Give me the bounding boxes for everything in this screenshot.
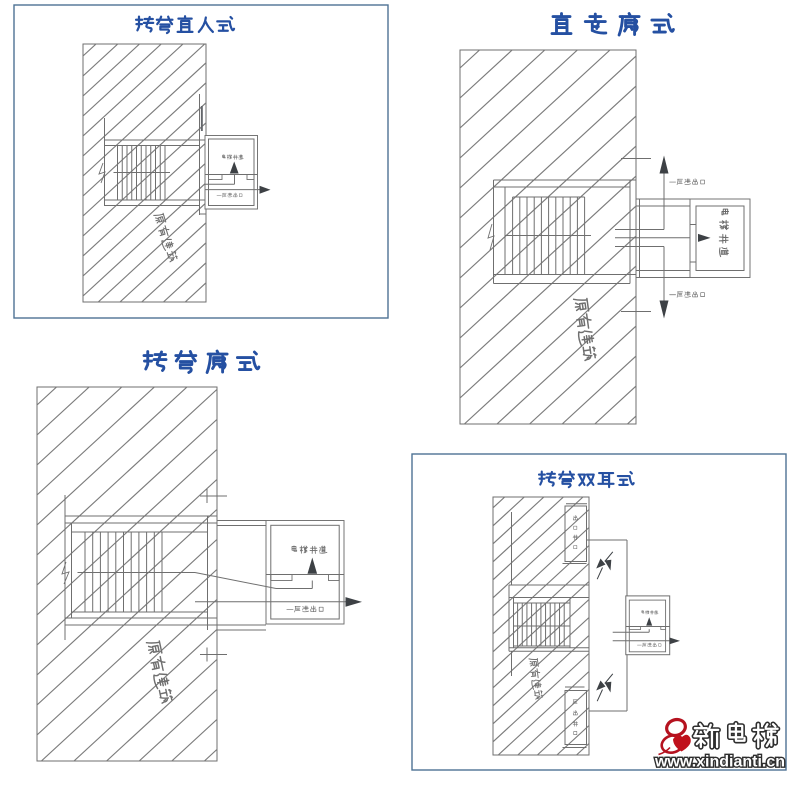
svg-text:www.xindianti.cn: www.xindianti.cn [654, 754, 785, 771]
